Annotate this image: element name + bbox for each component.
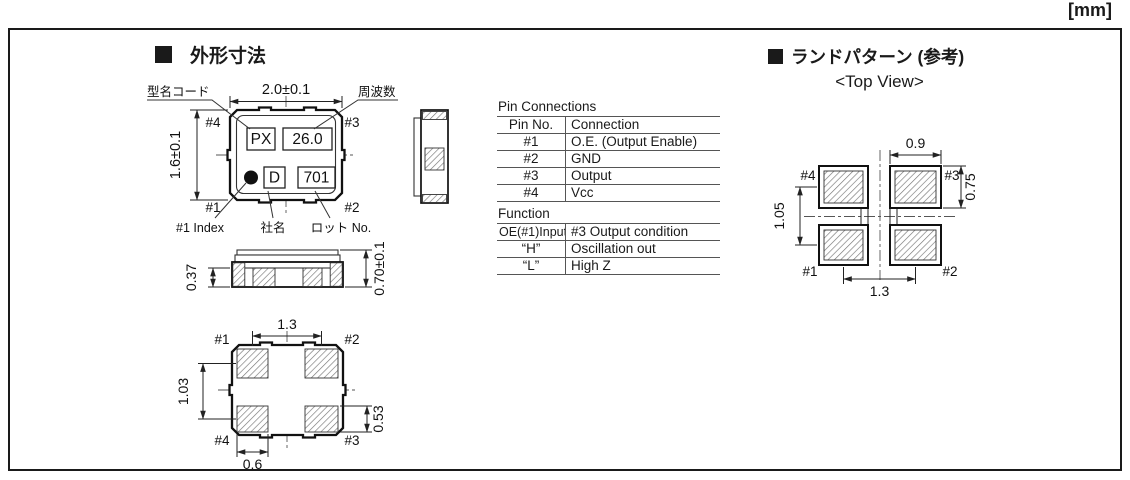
table-row: #4 Vcc — [497, 185, 720, 202]
connection-cell: O.E. (Output Enable) — [566, 134, 721, 151]
condition-cell: High Z — [566, 258, 721, 275]
side-pad-middle — [425, 148, 444, 170]
pin2-label: #2 — [344, 332, 359, 347]
bottom-pad-2 — [305, 349, 338, 378]
land-pad-4 — [819, 166, 868, 208]
land-pad-1 — [819, 225, 868, 265]
bottom-pad-1 — [237, 349, 268, 378]
dim-land-pitch-x-label: 1.3 — [870, 283, 890, 299]
side-pad-top — [423, 112, 447, 120]
front-body — [232, 262, 343, 287]
package-front-view: 0.37 0.70±0.1 — [183, 241, 387, 296]
package-bottom-view: 1.3 #1 #2 #4 #3 1.03 0.53 0.6 — [175, 316, 386, 472]
dim-pitch-x-label: 1.3 — [277, 316, 297, 332]
dim-height-label: 1.6±0.1 — [168, 131, 184, 179]
header-oe-input: OE(#1)Input — [497, 224, 566, 241]
callout-pin1-index: #1 Index — [176, 221, 225, 235]
side-pad-bottom — [423, 195, 447, 203]
header-pin-no: Pin No. — [497, 117, 566, 134]
front-pad-left — [233, 263, 245, 287]
package-side-view — [414, 110, 448, 203]
header-connection: Connection — [566, 117, 721, 134]
table-row: #1 O.E. (Output Enable) — [497, 134, 720, 151]
table-row: “L” High Z — [497, 258, 720, 275]
pin4-label: #4 — [800, 168, 816, 183]
land-top-view-subtitle: <Top View> — [772, 72, 987, 92]
land-section-heading: ランドパターン (参考) — [768, 44, 964, 69]
pin2-label: #2 — [344, 200, 359, 215]
front-pad-right — [330, 263, 342, 287]
function-block: Function OE(#1)Input #3 Output condition… — [497, 206, 720, 275]
pin-no-cell: #2 — [497, 151, 566, 168]
pin-connections-block: Pin Connections Pin No. Connection #1 O.… — [497, 99, 720, 202]
table-row: #2 GND — [497, 151, 720, 168]
dim-pad-height-label: 0.37 — [183, 264, 199, 291]
marking-company: D — [269, 170, 280, 187]
pin-no-cell: #4 — [497, 185, 566, 202]
pin-connections-title: Pin Connections — [498, 99, 720, 114]
pin-no-cell: #1 — [497, 134, 566, 151]
pin4-label: #4 — [205, 115, 221, 130]
pin-connections-table: Pin No. Connection #1 O.E. (Output Enabl… — [497, 116, 720, 202]
dim-pitch-y-label: 1.03 — [175, 378, 191, 405]
function-table: OE(#1)Input #3 Output condition “H” Osci… — [497, 223, 720, 275]
pin4-label: #4 — [214, 433, 230, 448]
front-pad-inner-left — [253, 268, 275, 287]
package-top-view: PX 26.0 D 701 2.0±0.1 1.6±0.1 #4 #3 #1 #… — [147, 82, 398, 235]
table-header-row: Pin No. Connection — [497, 117, 720, 134]
pin1-index-dot — [244, 171, 258, 185]
callout-lot: ロット No. — [311, 221, 371, 235]
pin3-label: #3 — [344, 115, 359, 130]
dim-land-width-label: 0.9 — [906, 135, 926, 151]
unit-label: [mm] — [1040, 0, 1112, 21]
front-pad-inner-right — [303, 268, 322, 287]
pin1-label: #1 — [214, 332, 229, 347]
pin-no-cell: #3 — [497, 168, 566, 185]
land-section-title: ランドパターン (参考) — [791, 44, 964, 69]
marking-model: PX — [251, 131, 272, 148]
pin3-label: #3 — [344, 433, 359, 448]
table-row: #3 Output — [497, 168, 720, 185]
datasheet-page: [mm] 外形寸法 ランドパターン (参考) <Top View> PX — [0, 0, 1130, 480]
oe-level-cell: “H” — [497, 241, 566, 258]
bottom-pad-3 — [305, 406, 338, 432]
pin2-label: #2 — [942, 264, 957, 279]
table-row: “H” Oscillation out — [497, 241, 720, 258]
outline-section-heading: 外形寸法 — [155, 41, 266, 68]
marking-frequency: 26.0 — [292, 131, 323, 148]
connection-cell: GND — [566, 151, 721, 168]
land-pad-2 — [890, 225, 941, 265]
front-lid-band — [235, 255, 340, 262]
front-lid-top — [237, 250, 338, 255]
dim-pad-height-label: 0.53 — [370, 405, 386, 432]
marking-lot: 701 — [304, 170, 330, 187]
section-marker-icon — [155, 46, 172, 63]
oe-level-cell: “L” — [497, 258, 566, 275]
pin1-label: #1 — [205, 200, 220, 215]
outline-section-title: 外形寸法 — [190, 41, 266, 68]
table-header-row: OE(#1)Input #3 Output condition — [497, 224, 720, 241]
land-pad-3 — [890, 166, 941, 208]
land-pattern-drawing: 0.9 0.75 1.05 1.3 #4 #3 #1 #2 — [768, 122, 993, 302]
connection-cell: Vcc — [566, 185, 721, 202]
function-title: Function — [498, 206, 720, 221]
dim-pad-width-label: 0.6 — [243, 456, 263, 472]
connection-cell: Output — [566, 168, 721, 185]
outline-drawings: PX 26.0 D 701 2.0±0.1 1.6±0.1 #4 #3 #1 #… — [140, 65, 470, 475]
bottom-pad-4 — [237, 406, 268, 432]
condition-cell: Oscillation out — [566, 241, 721, 258]
callout-company: 社名 — [260, 220, 285, 235]
side-lid-profile — [414, 118, 421, 196]
dim-width-label: 2.0±0.1 — [262, 82, 310, 98]
callout-frequency: 周波数 — [358, 84, 396, 99]
section-marker-icon — [768, 49, 783, 64]
pin3-label: #3 — [944, 168, 959, 183]
dim-land-pitch-y-label: 1.05 — [771, 202, 787, 229]
pin1-label: #1 — [802, 264, 817, 279]
header-output-condition: #3 Output condition — [566, 224, 721, 241]
dim-land-height-label: 0.75 — [962, 173, 978, 200]
dim-total-height-label: 0.70±0.1 — [371, 241, 387, 296]
callout-model-code: 型名コード — [147, 84, 210, 99]
